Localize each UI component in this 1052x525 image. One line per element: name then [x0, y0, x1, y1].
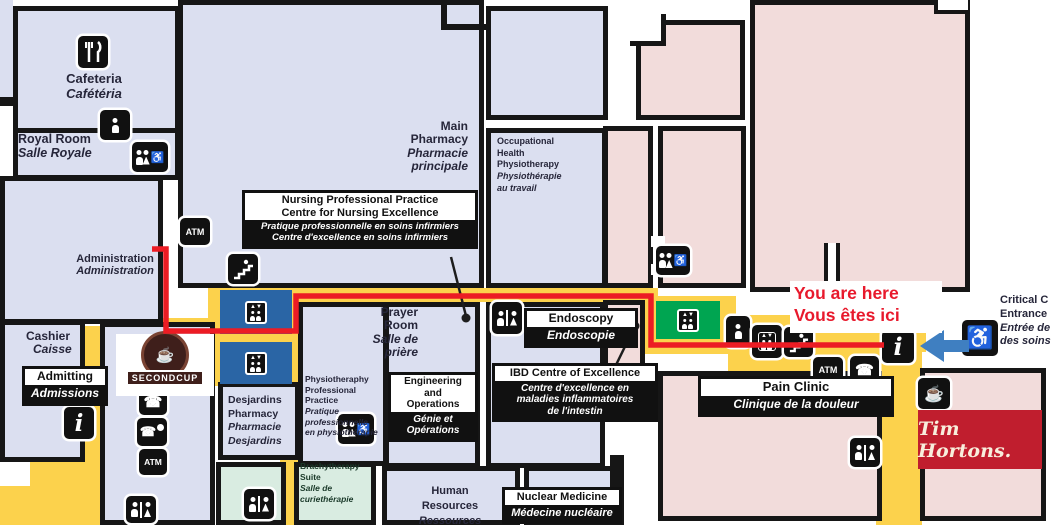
elevator-bay-blue-2: ▲▼: [220, 342, 292, 384]
information-icon: i: [882, 330, 914, 363]
endoscopy-label: Endoscopy Endoscopie: [524, 308, 638, 348]
nuclear-medicine-label: Nuclear Medicine Médecine nucléaire: [502, 487, 622, 524]
edge-strip-room: [0, 0, 13, 100]
corridor-bottom-left-edge: [0, 486, 32, 525]
elevator-bay-green: ▲▼: [656, 301, 720, 339]
person-icon: [726, 316, 750, 347]
ibd-label: IBD Centre of Excellence Centre d'excell…: [492, 363, 658, 422]
washroom-icon: [850, 438, 880, 467]
critical-care-entrance-label: Critical CEntrance Entrée dedes soins: [1000, 294, 1052, 349]
service-person-icon: [100, 110, 130, 140]
admitting-label: Admitting Admissions: [22, 366, 108, 406]
pain-clinic-label: Pain Clinic Clinique de la douleur: [698, 376, 894, 417]
wheelchair-entrance-icon: ♿: [962, 320, 998, 356]
cashier-label: CashierCaisse: [26, 330, 72, 357]
payphone-icon: ☎: [137, 418, 167, 446]
prayer-room-label: PrayerRoom Salle deprière: [318, 306, 418, 360]
washroom-accessible-icon: ♿: [132, 142, 168, 172]
washroom-icon: [492, 302, 522, 334]
room-cafeteria: [13, 6, 180, 134]
human-resources-label: HumanResources Ressources: [390, 484, 510, 525]
elevator-icon: ▲▼: [245, 352, 267, 375]
main-pharmacy-label: MainPharmacy Pharmacieprincipale: [388, 120, 468, 174]
room-pink-large: [750, 0, 970, 292]
wall-left-stub: [0, 97, 16, 106]
administration-label: AdministrationAdministration: [50, 253, 180, 278]
occupational-label: OccupationalHealth Physiotherapy Physiot…: [497, 136, 597, 194]
brachytherapy-label: BrachytherapySuite Salle decuriethérapie: [300, 461, 376, 505]
elevator-bay-blue-1: ▲▼: [220, 290, 292, 334]
coffee-icon: ☕: [918, 378, 950, 409]
you-are-here-label: You are here Vous êtes ici: [790, 281, 942, 333]
second-cup-logo: ☕ SECONDCUP: [116, 334, 214, 396]
elevator-icon: ▲▼: [245, 301, 267, 324]
physiotherapy-practice-label: PhysiotheraphyProfessional Practice Prat…: [305, 374, 395, 438]
washroom-icon: [126, 496, 156, 523]
hospital-floor-map: ▲▼ ▲▼ ▲▼ ♿ ATM ♿ ♿ ▲▼ i ATM ☎ i ☎ ☎ ATM: [0, 0, 1052, 525]
wall-top-notch-h: [441, 24, 491, 30]
desjardins-label: DesjardinsPharmacy PharmacieDesjardins: [228, 394, 282, 449]
royal-room-label: Royal RoomSalle Royale: [18, 132, 92, 160]
cafeteria-food-icon: [78, 36, 108, 68]
information-icon: i: [64, 407, 94, 439]
room-top-center: [486, 6, 608, 120]
cafeteria-label: CafeteriaCafétéria: [38, 72, 150, 101]
stairs-icon: [228, 254, 258, 284]
atm-icon: ATM: [180, 218, 210, 245]
corridor-bottom-left: [30, 458, 103, 525]
room-pink-column-upper: [603, 126, 653, 288]
atm-icon: ATM: [139, 449, 167, 475]
room-administration: [0, 176, 163, 324]
washroom-icon: [244, 489, 274, 519]
elevator-icon: ▲▼: [752, 325, 782, 358]
tim-hortons-logo: Tim Hortons.: [918, 410, 1042, 469]
nursing-label: Nursing Professional PracticeCentre for …: [242, 190, 478, 249]
elevator-icon: ▲▼: [677, 309, 699, 332]
room-stepped-notch: [630, 14, 666, 46]
room-pink-large-top-notch: [934, 0, 968, 14]
engineering-label: Engineering andOperations Génie etOpérat…: [388, 372, 478, 442]
second-cup-wordmark: SECONDCUP: [126, 370, 205, 386]
washroom-accessible-icon: ♿: [656, 246, 690, 275]
